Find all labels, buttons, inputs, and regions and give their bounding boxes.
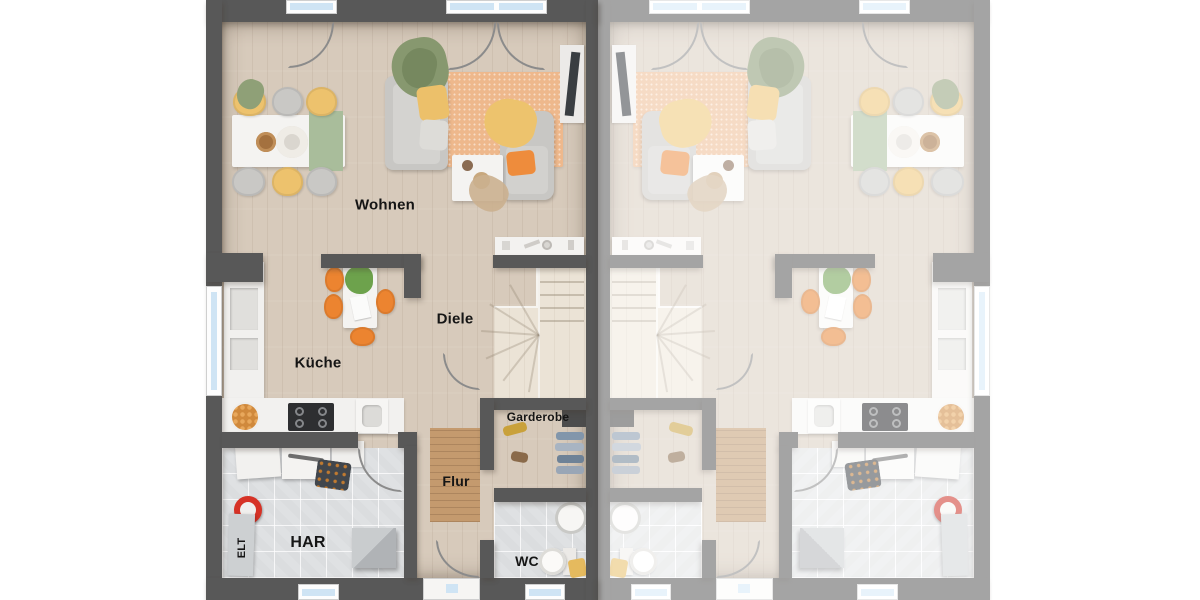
kitchen-chair	[853, 294, 872, 319]
stair-tread	[612, 281, 656, 283]
shoe-rack-shoes	[612, 455, 639, 463]
cooktop-burner	[892, 419, 901, 428]
room-label-flur: Flur	[442, 473, 469, 489]
floorplan-canvas: Wohnen Küche Diele Garderobe Flur HAR WC…	[0, 0, 1200, 600]
fruit-plate	[938, 404, 964, 430]
stair-tread	[540, 294, 584, 296]
window-har-glass	[861, 589, 894, 596]
stair-tread	[540, 307, 584, 309]
cooktop-burner	[869, 407, 878, 416]
wall-garderobe-wc	[610, 488, 702, 502]
stairs-landing-notch	[658, 268, 702, 308]
wall-kitchen-diele-return	[404, 254, 421, 298]
shoe-rack-shoes	[556, 466, 584, 474]
wall-flur-garderobe-upper	[480, 398, 494, 470]
room-label-diele: Diele	[437, 311, 474, 328]
sofa-pillow-gray	[747, 119, 777, 151]
wall-flur-garderobe-upper	[702, 398, 716, 470]
wc-toilet-bowl	[539, 548, 566, 575]
dining-chair	[272, 87, 303, 116]
wc-toilet-bowl	[630, 548, 657, 575]
armchair-pillow-orange	[506, 150, 536, 177]
cooktop-burner	[295, 407, 304, 416]
wc-towel	[609, 558, 629, 579]
dining-table-runner	[853, 111, 887, 171]
wall-under-sideboard	[493, 255, 586, 268]
room-label-garderobe: Garderobe	[507, 410, 570, 424]
shelf-decor	[622, 240, 628, 250]
dining-chair	[859, 167, 890, 196]
window-terrace-double-glass	[702, 3, 746, 10]
cooktop-burner	[318, 407, 327, 416]
wall-flur-garderobe-lower	[480, 540, 494, 578]
wall-flur-har	[404, 446, 417, 578]
stair-tread	[612, 320, 656, 322]
window-kitchen-glass	[211, 292, 217, 390]
shoe-rack-shoes	[557, 455, 584, 463]
shelf-decor	[644, 240, 654, 250]
kitchen-chair	[324, 294, 343, 319]
elt-cabinet-panel	[941, 514, 969, 577]
wall-kitchen-diele-return	[775, 254, 792, 298]
kitchen-chair	[376, 289, 395, 314]
window-wc-glass	[529, 589, 561, 596]
house-unit-right: Wohnen Küche Diele Garderobe Flur HAR WC…	[598, 0, 990, 600]
shelf-decor	[686, 241, 694, 250]
wall-under-sideboard	[610, 255, 703, 268]
kitchen-cabinet-niche	[230, 338, 258, 370]
kitchen-chair	[821, 327, 846, 346]
wall-flur-garderobe-lower	[702, 540, 716, 578]
entry-door-glass	[446, 584, 458, 593]
cooktop-burner	[295, 419, 304, 428]
shelf-decor	[502, 241, 510, 250]
sofa-pillow-gray	[419, 119, 449, 151]
room-label-har: HAR	[290, 534, 325, 552]
stairs-landing-notch	[494, 268, 538, 308]
dining-chair	[893, 87, 924, 116]
kitchen-cabinet-niche	[938, 288, 966, 330]
kitchen-sink-basin	[814, 405, 834, 427]
decor-wreath	[276, 126, 308, 158]
entry-door-glass	[738, 584, 750, 593]
kitchen-sink-basin	[362, 405, 382, 427]
sofa-pillow-yellow	[746, 84, 780, 122]
stair-tread	[612, 294, 656, 296]
fruit-plate	[232, 404, 258, 430]
rug-runner-flur	[716, 428, 766, 522]
decor-wreath	[888, 126, 920, 158]
kitchen-cabinet-niche	[938, 338, 966, 370]
dining-chair	[232, 167, 265, 196]
kitchen-cabinet-niche	[230, 288, 258, 330]
window-har-glass	[302, 589, 335, 596]
har-storage-box	[352, 528, 396, 568]
stair-tread	[540, 320, 584, 322]
armchair-pillow-orange	[660, 150, 690, 177]
cooktop-burner	[892, 407, 901, 416]
shoe-rack-shoes	[612, 466, 640, 474]
window-terrace-single-glass	[290, 3, 333, 10]
room-label-wc: WC	[515, 553, 539, 569]
wc-towel	[568, 558, 588, 579]
shelf-decor	[542, 240, 552, 250]
cooktop	[288, 403, 334, 431]
window-terrace-double-glass	[499, 3, 543, 10]
kitchen-table-plant	[345, 266, 373, 294]
decor-bowl	[256, 132, 276, 152]
shoe-rack-shoes	[612, 443, 641, 451]
cooktop-burner	[318, 419, 327, 428]
window-kitchen-glass	[979, 292, 985, 390]
decor-bowl	[920, 132, 940, 152]
room-label-kueche: Küche	[295, 355, 342, 372]
wall-stairs-garderobe	[610, 398, 702, 410]
wall-kitchen-har	[222, 432, 358, 448]
wc-sink	[612, 505, 638, 531]
kitchen-chair	[325, 267, 344, 292]
dining-table-runner	[309, 111, 343, 171]
decor-vase	[462, 160, 473, 171]
decor-vase	[723, 160, 734, 171]
wall-kitchen-har	[838, 432, 974, 448]
cooktop-burner	[869, 419, 878, 428]
wall-garderobe-wc	[494, 488, 586, 502]
har-storage-box	[800, 528, 844, 568]
dining-chair	[306, 87, 337, 116]
kitchen-tall-cabinet	[932, 262, 972, 398]
sofa-pillow-yellow	[416, 84, 450, 122]
kitchen-chair	[852, 267, 871, 292]
wall-kitchen-left-stub	[933, 253, 990, 282]
shoe-rack-shoes	[612, 432, 640, 440]
har-tool-pile	[844, 459, 882, 491]
room-label-wohnen: Wohnen	[355, 197, 415, 214]
window-wc-glass	[635, 589, 667, 596]
stair-tread	[540, 281, 584, 283]
shoe-rack-shoes	[556, 432, 584, 440]
dining-chair	[272, 167, 303, 196]
wc-sink	[558, 505, 584, 531]
wall-kitchen-left-stub	[206, 253, 263, 282]
har-tool-pile	[314, 459, 352, 491]
stair-tread	[612, 307, 656, 309]
kitchen-chair	[350, 327, 375, 346]
dining-chair	[931, 167, 964, 196]
wall-party	[598, 0, 610, 600]
room-label-elt: ELT	[236, 538, 248, 559]
dining-chair	[306, 167, 337, 196]
shoe-rack-shoes	[555, 443, 584, 451]
window-terrace-double-glass	[450, 3, 494, 10]
dining-chair	[859, 87, 890, 116]
house-unit-left: Wohnen Küche Diele Garderobe Flur HAR WC…	[206, 0, 598, 600]
wall-flur-har	[779, 446, 792, 578]
window-terrace-single-glass	[863, 3, 906, 10]
shelf-decor	[568, 240, 574, 250]
window-terrace-double-glass	[653, 3, 697, 10]
wall-stairs-garderobe	[494, 398, 586, 410]
kitchen-tall-cabinet	[224, 262, 264, 398]
wall-party	[586, 0, 598, 600]
cooktop	[862, 403, 908, 431]
kitchen-chair	[801, 289, 820, 314]
dining-chair	[893, 167, 924, 196]
